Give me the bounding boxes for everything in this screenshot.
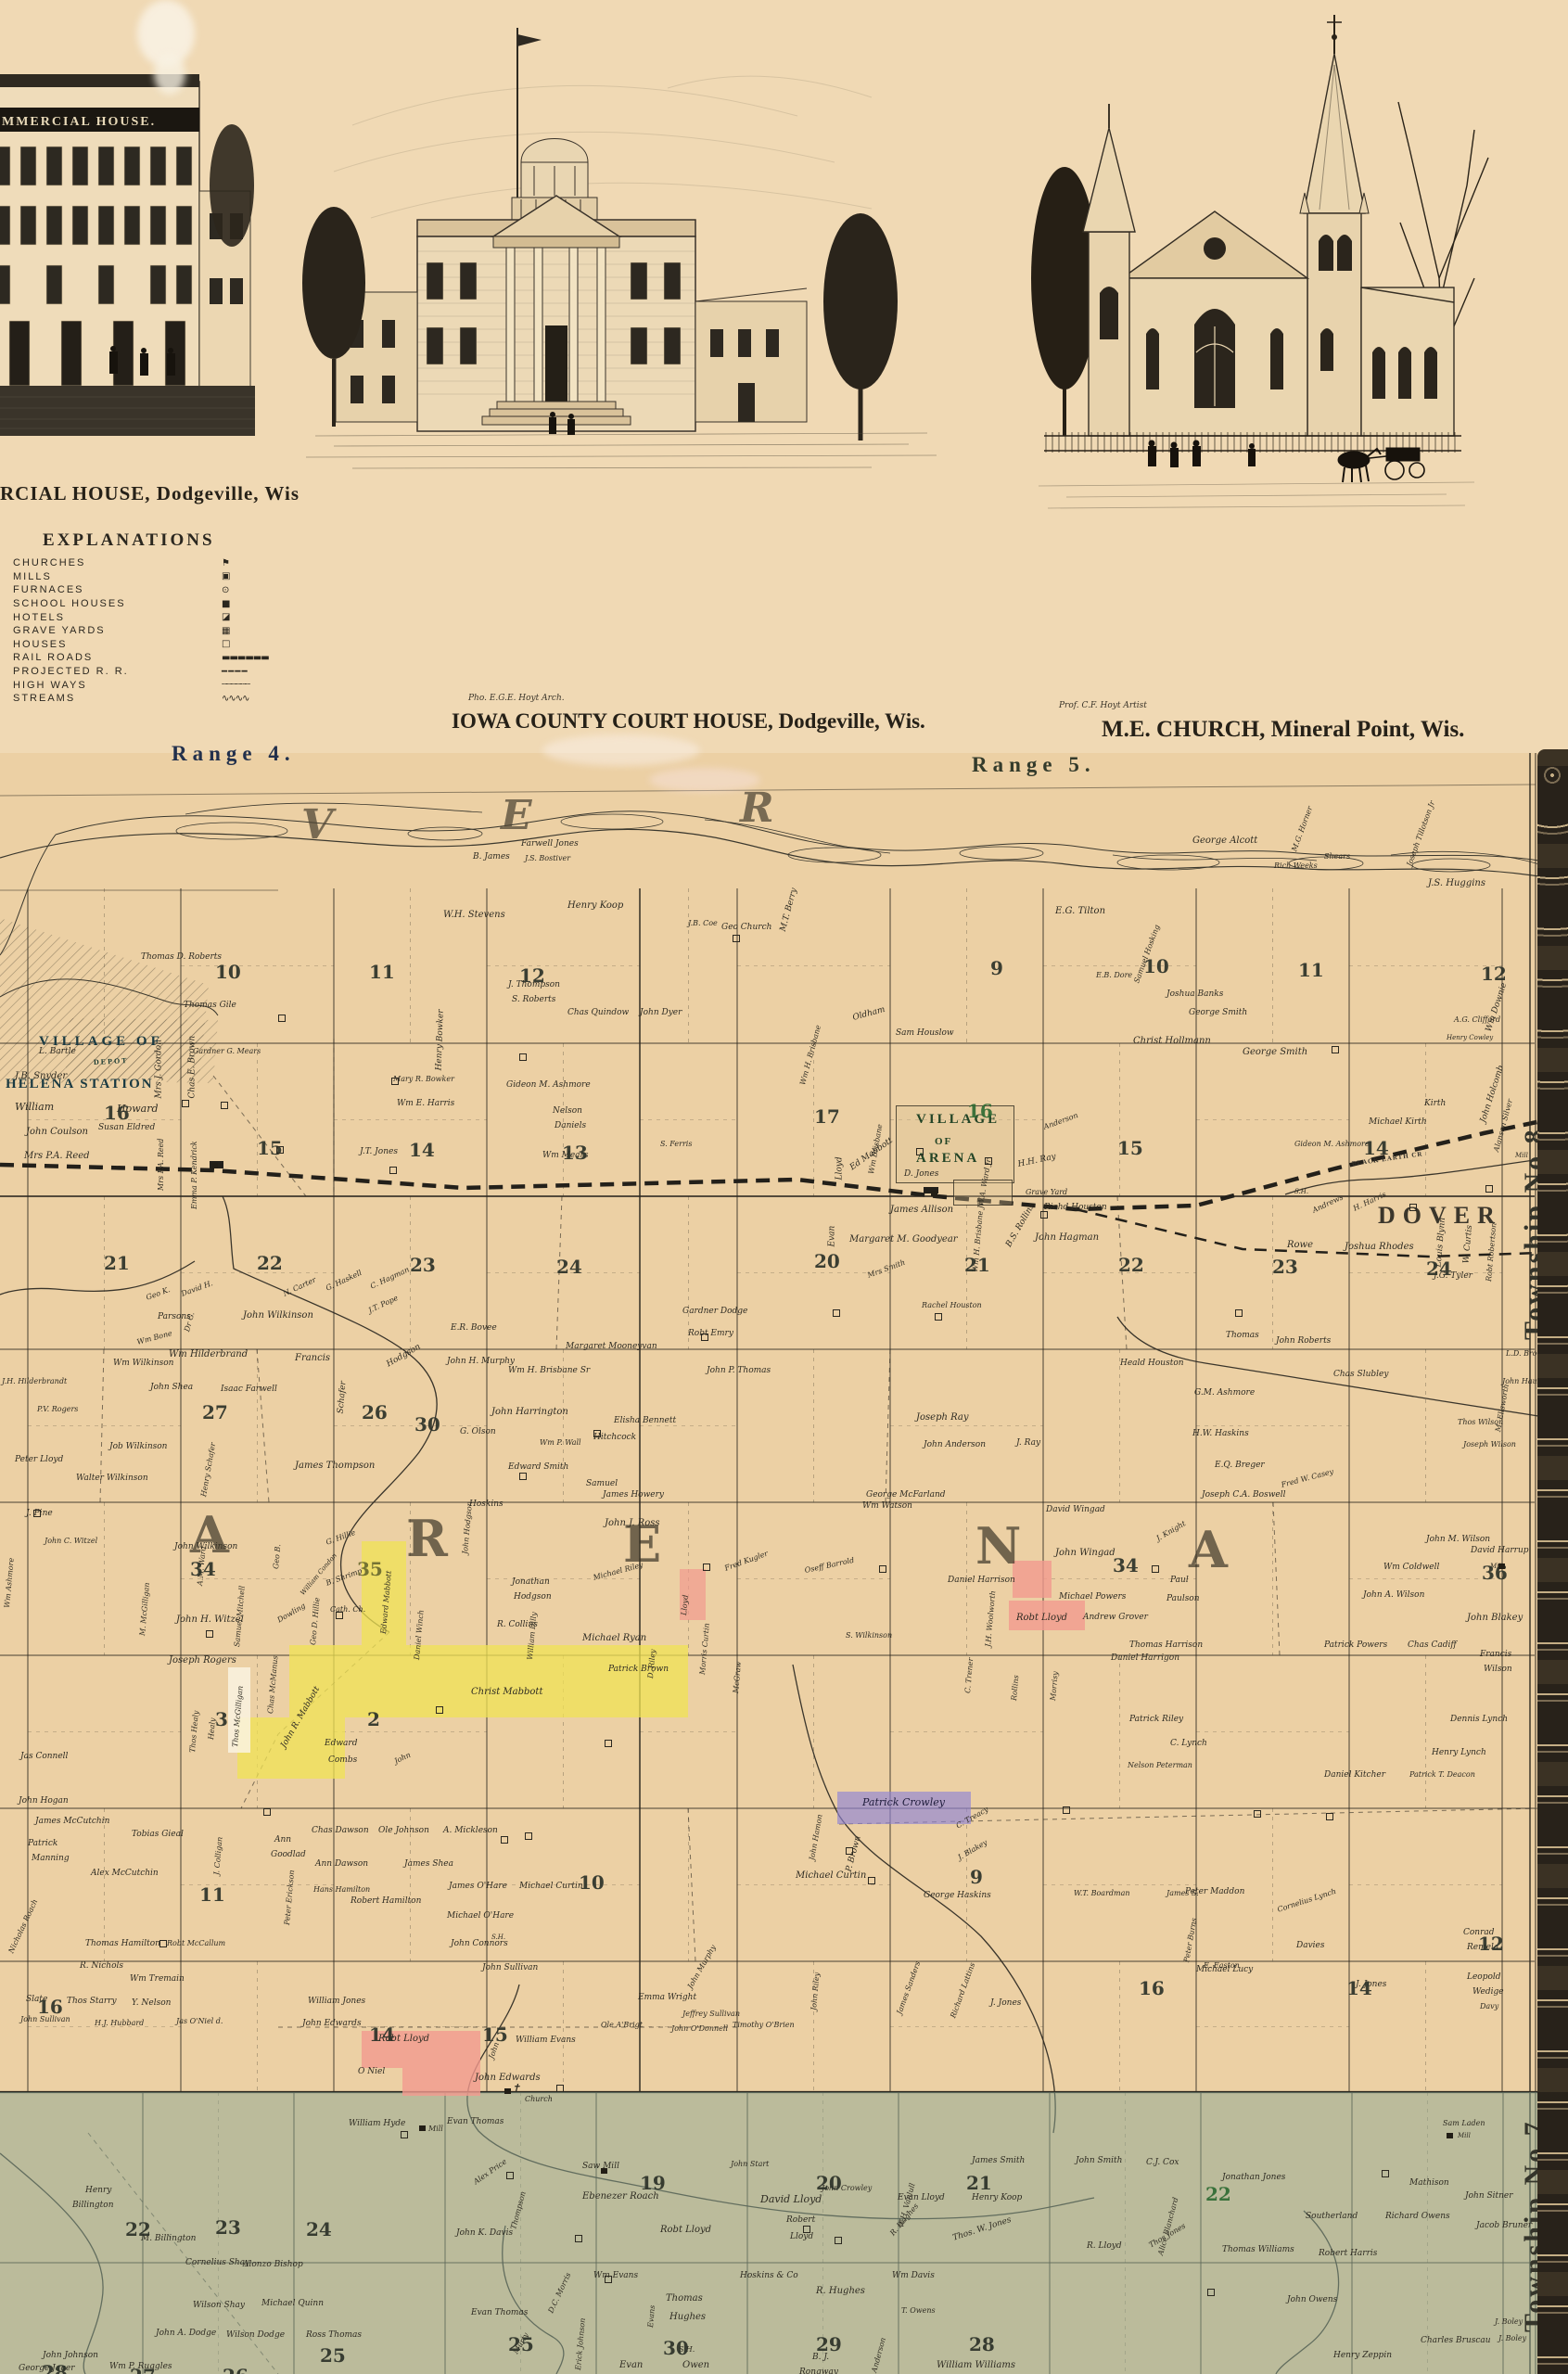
legend-label: MILLS	[13, 571, 222, 582]
section-number: 23	[410, 1256, 436, 1274]
plat-owner-name: Gideon M. Ashmore	[1294, 1141, 1370, 1148]
section-number: 30	[663, 2339, 689, 2357]
mill-symbol	[1447, 2133, 1453, 2138]
house-symbol	[519, 1473, 527, 1480]
plat-owner-name: Margaret M. Goodyear	[849, 1235, 958, 1244]
plat-owner-name: D. Jones	[904, 1170, 938, 1179]
plat-owner-name: Joseph C.A. Boswell	[1202, 1491, 1285, 1500]
parcel-robt-lloyd-south-b	[402, 2068, 480, 2096]
section-number: 2	[367, 1710, 380, 1729]
plat-owner-name: Francis	[1480, 1651, 1511, 1659]
plat-owner-name: James Thompson	[295, 1461, 375, 1471]
section-number: 26	[223, 2367, 249, 2374]
plat-owner-name: Grave Yard	[1026, 1189, 1067, 1196]
plat-owner-name: Jonathan	[512, 1578, 550, 1587]
plat-owner-name: Patrick Riley	[1129, 1716, 1183, 1724]
house-symbol	[703, 1564, 710, 1571]
plat-owner-name: Daniels	[555, 1122, 586, 1130]
section-number: 10	[215, 963, 241, 981]
me-church-credit: Prof. C.F. Hoyt Artist	[1059, 701, 1147, 710]
house-symbol	[593, 1430, 601, 1437]
section-number: 11	[1298, 961, 1324, 979]
plat-owner-name: Kirth	[1424, 1100, 1446, 1108]
house-symbol	[701, 1334, 708, 1341]
section-number: 35	[357, 1560, 383, 1578]
plat-owner-name: Thomas D. Roberts	[141, 953, 222, 962]
section-number: 21	[966, 2174, 992, 2192]
plat-owner-name: Edward Smith	[508, 1463, 568, 1472]
horse-carriage	[1338, 448, 1424, 482]
plat-owner-name: J.S. Huggins	[1428, 879, 1485, 888]
section-number: 15	[482, 2025, 508, 2044]
house-symbol	[525, 1832, 532, 1840]
plat-owner-name: Ole A'Brigt	[601, 2022, 643, 2029]
section-number: 14	[1363, 1139, 1389, 1157]
plat-owner-name: Evan Thomas	[471, 2309, 528, 2317]
plat-owner-name: Wm Tremain	[130, 1975, 185, 1984]
plat-owner-name: Sam Houslow	[896, 1029, 954, 1038]
legend-row: MILLS▣	[13, 570, 291, 584]
paper-stain	[649, 768, 760, 792]
mill-symbol	[504, 2088, 511, 2094]
house-symbol	[803, 2226, 810, 2233]
plat-owner-name: Jas Connell	[20, 1753, 68, 1761]
section-number: 16	[967, 1102, 993, 1120]
plat-owner-name: Patrick Brown	[608, 1666, 669, 1674]
plat-owner-name: Joseph Ray	[916, 1413, 968, 1423]
plat-owner-name: Joseph Wilson	[1463, 1441, 1516, 1449]
house-symbol	[605, 1740, 612, 1747]
plat-owner-name: Davy	[1480, 2003, 1498, 2010]
plat-owner-name: William Hyde	[349, 2120, 405, 2128]
plat-owner-name: Michael Ryan	[582, 1634, 646, 1643]
furnace-symbol: ⊙	[222, 585, 287, 595]
hotel-symbol: ◪	[222, 612, 287, 622]
house-symbol	[733, 935, 740, 942]
plat-owner-name: Francis	[295, 1354, 330, 1363]
plat-owner-name: Henry	[85, 2187, 111, 2195]
plat-owner-name: S. Roberts	[512, 996, 555, 1004]
legend-label: FURNACES	[13, 584, 222, 595]
plat-owner-name: Thomas	[666, 2294, 703, 2304]
plat-owner-name: George Smith	[1189, 1009, 1247, 1017]
plat-owner-name: Robert Hamilton	[351, 1897, 421, 1906]
house-symbol	[846, 1847, 853, 1855]
house-symbol	[33, 1510, 41, 1517]
mill-symbol	[1498, 1564, 1505, 1569]
plat-owner-name: Timothy O'Brien	[733, 2022, 795, 2029]
plat-owner-name: A. Mickleson	[443, 1827, 498, 1835]
plat-owner-name: H.J. Hubbard	[95, 2020, 144, 2027]
house-symbol	[1152, 1565, 1159, 1573]
plat-owner-name: Wm H. Brisbane Sr	[508, 1367, 590, 1375]
section-number: 20	[814, 1252, 840, 1270]
legend-row: FURNACES⊙	[13, 583, 291, 597]
court-house-caption: IOWA COUNTY COURT HOUSE, Dodgeville, Wis…	[452, 710, 925, 732]
plat-owner-name: Mill	[1458, 2133, 1471, 2139]
house-symbol	[1063, 1806, 1070, 1814]
plat-owner-name: Sam Laden	[1443, 2120, 1485, 2127]
section-number: 21	[964, 1256, 990, 1274]
legend-row: GRAVE YARDS▦	[13, 624, 291, 638]
plat-owner-name: Hoskins	[469, 1500, 504, 1509]
school-symbol: ■	[222, 599, 287, 609]
plat-owner-name: Chas Quindow	[567, 1009, 629, 1017]
plat-owner-name: William	[15, 1102, 54, 1112]
section-number: 11	[369, 963, 395, 981]
township-letter: R	[406, 1513, 448, 1564]
section-number: 12	[1481, 964, 1507, 983]
plat-owner-name: Emma Wright	[638, 1994, 696, 2002]
mill-symbol	[601, 2168, 607, 2174]
section-number: 19	[640, 2174, 666, 2192]
plat-owner-name: E.Q. Breger	[1215, 1461, 1265, 1470]
plat-owner-name: Farwell Jones	[521, 840, 579, 849]
legend-title: EXPLANATIONS	[43, 530, 291, 551]
plat-owner-name: James Shea	[404, 1860, 453, 1869]
plat-owner-name: Hans Hamilton	[313, 1886, 370, 1894]
section-number: 14	[1346, 1979, 1372, 1997]
plat-owner-name: George Smith	[1243, 1048, 1307, 1057]
plat-owner-name: James Allison	[890, 1206, 953, 1215]
plat-owner-name: John Smith	[1076, 2157, 1122, 2165]
plat-owner-name: Daniel Harrison	[948, 1576, 1015, 1585]
plat-owner-name: Nelson Peterman	[1128, 1762, 1192, 1769]
ornamental-border	[1537, 749, 1568, 2374]
plat-owner-name: James S.	[1166, 1890, 1199, 1897]
section-number: 10	[579, 1873, 605, 1892]
plat-owner-name: Mill	[428, 2125, 443, 2133]
house-symbol	[278, 1015, 286, 1022]
plat-owner-name: John M. Wilson	[1426, 1536, 1490, 1544]
plat-owner-name: William Evans	[516, 2036, 576, 2045]
plat-owner-name: R. Hughes	[816, 2287, 865, 2296]
plat-owner-name: Robt Lloyd	[1016, 1614, 1067, 1623]
section-number: 22	[257, 1254, 283, 1272]
legend-label: PROJECTED R. R.	[13, 666, 222, 677]
plat-owner-name: Mrs P.A. Reed	[24, 1152, 90, 1161]
plat-owner-name: Y. Nelson	[132, 1999, 171, 2008]
plat-owner-name: Chas Cadiff	[1408, 1641, 1457, 1650]
plat-owner-name: Thomas	[1226, 1332, 1259, 1340]
plat-owner-name: Henry Cowley	[1447, 1035, 1493, 1041]
section-number: 27	[202, 1403, 228, 1422]
plat-owner-name: Rongway	[799, 2368, 838, 2374]
plat-owner-name: John A. Wilson	[1363, 1591, 1424, 1600]
legend-row: HIGH WAYS┄┄┄┄┄┄	[13, 678, 291, 692]
plat-owner-name: Wilson Dodge	[226, 2331, 285, 2340]
plat-owner-name: David Harrup	[1471, 1547, 1529, 1555]
plat-owner-name: W.H. Stevens	[443, 911, 505, 920]
plat-owner-name: Margaret Mooneyvan	[566, 1343, 657, 1351]
plat-owner-name: C.J. Cox	[1146, 2159, 1179, 2167]
legend-row: HOTELS◪	[13, 610, 291, 624]
section-number: 23	[215, 2218, 241, 2237]
house-symbol	[916, 1148, 924, 1155]
plat-owner-name: Thos Starry	[67, 1997, 117, 2006]
commercial-house-illustration: MMERCIAL HOUSE.	[0, 0, 255, 487]
plat-owner-name: Owen	[682, 2361, 709, 2370]
plat-owner-name: Billington	[72, 2202, 114, 2210]
plat-owner-name: John Johnson	[43, 2352, 98, 2360]
house-symbol	[1326, 1813, 1333, 1820]
plat-owner-name: Lloyd	[836, 1156, 845, 1180]
plat-owner-name: Nelson	[553, 1107, 582, 1116]
paper-damage	[154, 54, 185, 95]
house-symbol	[506, 2172, 514, 2179]
plat-owner-name: Henry Lynch	[1432, 1749, 1486, 1757]
plat-owner-name: Combs	[328, 1756, 357, 1765]
river-letter: R	[740, 788, 778, 829]
plat-owner-name: Rowe	[1287, 1241, 1313, 1250]
legend-label: RAIL ROADS	[13, 652, 222, 663]
section-number: 25	[320, 2346, 346, 2365]
plat-owner-name: George McFarland	[866, 1491, 946, 1500]
place-label: OF	[935, 1137, 952, 1147]
plat-owner-name: Hodgson	[514, 1593, 552, 1602]
plat-owner-name: Mary R. Bowker	[393, 1076, 454, 1083]
place-label: VILLAGE OF	[39, 1035, 163, 1049]
plat-owner-name: John Dyer	[640, 1009, 682, 1017]
township-letter: A	[1189, 1525, 1228, 1575]
projected-rr-symbol: ━ ━ ━ ━	[222, 667, 287, 677]
legend-label: STREAMS	[13, 693, 222, 704]
plat-owner-name: Robt Emry	[688, 1330, 733, 1338]
railroad-symbol: ▬▬▬▬▬▬	[222, 653, 287, 663]
plat-owner-name: R. Lloyd	[1087, 2242, 1122, 2251]
map-legend: EXPLANATIONS CHURCHES⚑MILLS▣FURNACES⊙SCH…	[13, 530, 291, 706]
place-label: ARENA	[916, 1152, 979, 1166]
legend-row: HOUSES□	[13, 638, 291, 652]
plat-owner-name: S. Wilkinson	[846, 1632, 892, 1640]
church-symbol: ⚑	[222, 558, 287, 568]
plat-owner-name: E.B. Dore	[1096, 972, 1132, 979]
plat-owner-name: John O'Donnell	[671, 2025, 728, 2033]
house-symbol	[575, 2235, 582, 2242]
plat-owner-name: John Hagman	[1035, 1233, 1099, 1243]
township-letter: N	[975, 1521, 1021, 1571]
section-number: 13	[562, 1143, 588, 1162]
house-symbol	[389, 1167, 397, 1174]
plat-owner-name: Paul	[1170, 1576, 1189, 1585]
plat-owner-name: Wm Watson	[862, 1502, 912, 1511]
plat-owner-name: John Wilkinson	[243, 1311, 313, 1321]
plat-owner-name: Evan	[619, 2361, 643, 2370]
plat-owner-name: Michael Powers	[1059, 1593, 1126, 1602]
section-number: 12	[519, 966, 545, 985]
plat-owner-name: P.V. Rogers	[37, 1406, 78, 1413]
plat-owner-name: Paulson	[1166, 1595, 1200, 1603]
section-number: 25	[508, 2335, 534, 2354]
plat-owner-name: Wilson	[1484, 1666, 1512, 1674]
plat-owner-name: John Hogan	[19, 1797, 69, 1806]
plat-owner-name: John Edwards	[302, 2020, 362, 2028]
house-symbol	[519, 1053, 527, 1061]
plat-owner-name: John H. Witzel	[176, 1615, 244, 1625]
plat-owner-name: Wedige	[1472, 1988, 1504, 1997]
plat-owner-name: Robert	[786, 2216, 815, 2225]
plat-owner-name: J.S. Bostiver	[525, 855, 570, 862]
house-symbol	[276, 1146, 284, 1154]
plat-owner-name: Henry Zeppin	[1333, 2352, 1392, 2360]
plat-owner-name: Goodlad	[271, 1851, 306, 1859]
plat-owner-name: Jonathan Jones	[1222, 2174, 1285, 2182]
plat-owner-name: Wm Wilkinson	[113, 1359, 173, 1368]
plat-owner-name: Michael Kirth	[1369, 1118, 1427, 1127]
plat-owner-name: Elisha Bennett	[614, 1417, 676, 1425]
stream-symbol: ∿∿∿∿	[222, 694, 287, 704]
plat-owner-name: Joseph Rogers	[169, 1656, 236, 1666]
highway-symbol: ┄┄┄┄┄┄	[222, 680, 287, 690]
section-number: 22	[1205, 2185, 1231, 2203]
plat-owner-name: Michael Curtin	[519, 1883, 583, 1891]
plat-owner-name: Daniel Harrigon	[1111, 1654, 1179, 1663]
legend-label: GRAVE YARDS	[13, 625, 222, 636]
section-number: 34	[1113, 1556, 1139, 1575]
plat-owner-name: David Lloyd	[760, 2194, 822, 2204]
plat-owner-name: Ole Johnson	[378, 1827, 429, 1835]
plat-owner-name: John C. Witzel	[45, 1538, 97, 1545]
house-symbol	[221, 1102, 228, 1109]
house-symbol	[835, 2237, 842, 2244]
plat-owner-name: R. Nichols	[80, 1962, 123, 1971]
plat-owner-name: Thomas Williams	[1222, 2246, 1294, 2254]
plat-owner-name: Chas E. Brown	[189, 1036, 198, 1099]
plat-owner-name: Alonzo Bishop	[243, 2261, 303, 2269]
plat-owner-name: S.H.	[1294, 1189, 1308, 1195]
plat-owner-name: Christ Mabbott	[471, 1688, 542, 1697]
plat-owner-name: Emma P. Kendrick	[191, 1141, 198, 1209]
plat-owner-name: Ann Dawson	[315, 1860, 368, 1869]
plat-owner-name: J. Ray	[1016, 1439, 1040, 1448]
section-number: 16	[37, 1997, 63, 2016]
plat-owner-name: John Sullivan	[482, 1964, 538, 1972]
plat-owner-name: Evan Lloyd	[898, 2194, 945, 2202]
commercial-house-sign: MMERCIAL HOUSE.	[2, 115, 156, 129]
plat-owner-name: Heald Houston	[1120, 1359, 1184, 1368]
house-symbol	[879, 1565, 886, 1573]
paper-stain	[542, 734, 700, 766]
section-number: 9	[970, 1868, 983, 1886]
plat-owner-name: Peter Lloyd	[15, 1456, 63, 1464]
section-number: 16	[104, 1104, 130, 1122]
section-number: 27	[130, 2367, 156, 2374]
plat-owner-name: Evan	[829, 1226, 837, 1247]
plat-owner-name: J. Boley	[1498, 2335, 1526, 2342]
plat-owner-name: James O'Hare	[449, 1883, 507, 1891]
house-symbol	[336, 1612, 343, 1619]
plat-owner-name: S. Ferris	[660, 1141, 692, 1148]
section-number: 22	[1118, 1256, 1144, 1274]
plat-owner-name: Walter Wilkinson	[76, 1474, 148, 1483]
plat-owner-name: Alex McCutchin	[91, 1870, 159, 1878]
range-label: Range 4.	[172, 742, 296, 766]
legend-row: STREAMS∿∿∿∿	[13, 692, 291, 706]
plat-owner-name: George Alcott	[1192, 836, 1257, 846]
legend-row: RAIL ROADS▬▬▬▬▬▬	[13, 651, 291, 665]
river-letter: E	[501, 796, 536, 836]
house-symbol	[1207, 2289, 1215, 2296]
plat-owner-name: E.G. Tilton	[1055, 907, 1105, 916]
graveyard-symbol: ▦	[222, 626, 287, 636]
plat-owner-name: John Shea	[150, 1384, 193, 1392]
plat-owner-name: Leopold	[1467, 1973, 1501, 1982]
place-label: HELENA STATION	[6, 1078, 154, 1091]
plat-owner-name: John Connors	[451, 1940, 508, 1948]
plat-owner-name: John Sitner	[1465, 2192, 1513, 2201]
me-church-illustration	[1011, 0, 1502, 714]
commercial-house-caption: RCIAL HOUSE, Dodgeville, Wis	[0, 484, 300, 504]
legend-label: HOUSES	[13, 639, 222, 650]
section-number: 10	[1143, 957, 1169, 976]
plat-owner-name: Wm Evans	[593, 2272, 638, 2280]
plat-owner-name: Chas Dawson	[312, 1827, 369, 1835]
plat-owner-name: Chas Slubley	[1333, 1371, 1388, 1379]
atlas-map-page: MMERCIAL HOUSE.	[0, 0, 1568, 2374]
plat-owner-name: Michael O'Hare	[447, 1912, 514, 1921]
plat-owner-name: Geo Church	[721, 924, 771, 932]
house-symbol	[159, 1940, 167, 1947]
house-symbol	[1332, 1046, 1339, 1053]
legend-label: CHURCHES	[13, 557, 222, 568]
section-number: 26	[362, 1403, 388, 1422]
river-letter: V	[301, 805, 337, 846]
plat-owner-name: W.T. Boardman	[1074, 1890, 1130, 1897]
plat-owner-name: Robt McCallum	[167, 1940, 225, 1947]
mill-symbol: ▣	[222, 571, 287, 581]
plat-owner-name: Michael Quinn	[261, 2300, 324, 2308]
plat-owner-name: William Williams	[937, 2361, 1015, 2370]
plat-owner-name: Ann	[274, 1836, 291, 1844]
plat-owner-name: R. Collins	[497, 1621, 538, 1629]
house-symbol	[401, 2131, 408, 2138]
plat-owner-name: John Wingad	[1055, 1549, 1115, 1558]
plat-owner-name: Wm Hilderbrand	[169, 1350, 248, 1359]
plat-owner-name: Edward	[325, 1740, 357, 1748]
plat-owner-name: Joshua Rhodes	[1345, 1243, 1414, 1252]
plat-owner-name: Henry Koop	[567, 901, 623, 911]
plat-owner-name: Patrick Crowley	[862, 1797, 945, 1807]
plat-owner-name: William Jones	[308, 1997, 365, 2006]
plat-owner-name: Robert Harris	[1319, 2250, 1377, 2258]
mill-symbol	[211, 1163, 218, 1168]
plat-owner-name: Southerland	[1306, 2213, 1358, 2221]
legend-row: SCHOOL HOUSES■	[13, 597, 291, 611]
plat-owner-name: Susan Eldred	[98, 1124, 155, 1132]
mill-symbol	[931, 1191, 937, 1196]
plat-owner-name: John Anderson	[924, 1441, 986, 1449]
plat-owner-name: G. Olson	[460, 1428, 496, 1436]
section-number: 16	[1139, 1979, 1165, 1997]
house-symbol	[1235, 1309, 1243, 1317]
plat-owner-name: Henry Koop	[972, 2194, 1022, 2202]
plat-owner-name: Shears	[1324, 853, 1350, 861]
plat-owner-name: John Blakey	[1467, 1614, 1523, 1623]
plat-owner-name: Mathison	[1409, 2179, 1449, 2188]
section-number: 22	[125, 2220, 151, 2239]
plat-owner-name: Gardner Dodge	[682, 1308, 747, 1316]
house-symbol	[501, 1836, 508, 1844]
plat-owner-name: John K. Davis	[456, 2229, 513, 2238]
section-number: 17	[814, 1107, 840, 1126]
plat-owner-name: Jeffrey Sullivan	[682, 2010, 740, 2018]
section-number: 28	[42, 2363, 68, 2374]
plat-owner-name: Davies	[1296, 1942, 1325, 1950]
plat-owner-name: Thomas Gile	[184, 1002, 236, 1010]
plat-owner-name: C. Lynch	[1170, 1740, 1207, 1748]
house-symbol	[1040, 1211, 1048, 1219]
house-symbol	[605, 2276, 612, 2283]
